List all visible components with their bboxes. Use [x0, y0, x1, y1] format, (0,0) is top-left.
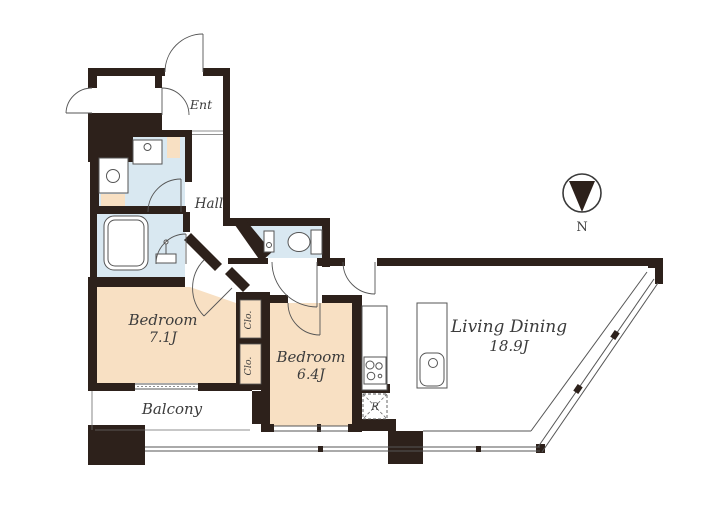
entrance-inner-door	[162, 88, 189, 115]
toilet	[288, 230, 322, 254]
railing-post	[318, 446, 323, 452]
compass-needle-icon	[569, 181, 595, 212]
refrigerator-label: R	[370, 402, 379, 413]
living-dining-size: 18.9J	[489, 337, 529, 355]
balcony-label: Balcony	[141, 400, 203, 418]
living-door	[343, 262, 375, 294]
closet-upper-label: Clo.	[243, 311, 254, 330]
bedroom-main-label: Bedroom	[128, 311, 198, 329]
washing-machine-pan	[133, 140, 162, 164]
hall-label: Hall	[194, 196, 223, 212]
storage-room-door	[66, 88, 92, 113]
floor-plan: N Ent Hall Bedroom 7.1J Bedroom 6.4J Liv…	[0, 0, 711, 512]
shelf-nook	[167, 137, 180, 158]
window-mullion	[573, 384, 582, 394]
bedroom-second-size: 6.4J	[297, 367, 326, 383]
entrance-door	[165, 34, 203, 72]
bathtub	[104, 216, 148, 270]
entrance-label: Ent	[189, 97, 213, 112]
linen-nook	[101, 194, 125, 206]
compass-north-label: N	[576, 220, 587, 235]
bedroom-main-size: 7.1J	[149, 330, 178, 346]
bedroom-second-label: Bedroom	[276, 348, 346, 366]
closet-lower-label: Clo.	[243, 357, 254, 376]
diagonal-window	[538, 279, 654, 447]
gas-stove	[364, 357, 386, 384]
kitchen-island-sink	[417, 303, 447, 388]
toilet-hand-basin	[264, 231, 274, 252]
north-compass: N	[563, 174, 601, 235]
railing-post	[476, 446, 481, 452]
living-dining-label: Living Dining	[450, 317, 567, 337]
floor-plan-page: N Ent Hall Bedroom 7.1J Bedroom 6.4J Liv…	[0, 0, 711, 512]
washbasin-counter	[99, 158, 128, 193]
